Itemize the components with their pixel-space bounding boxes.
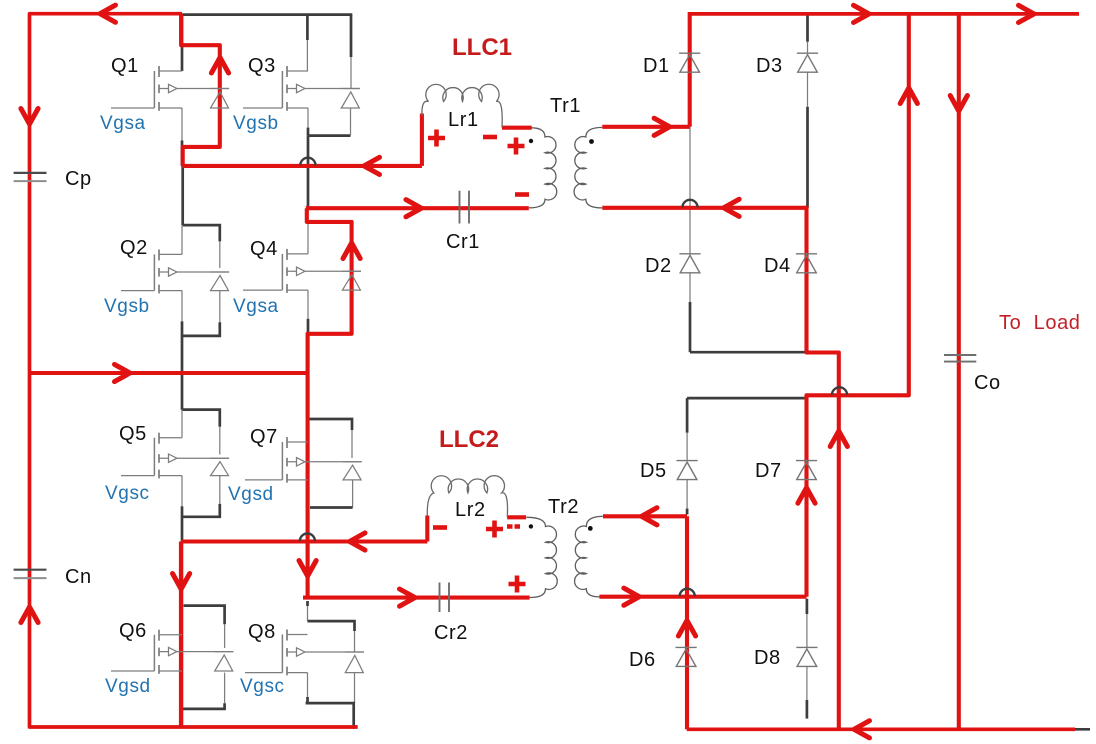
svg-text:Vgsa: Vgsa xyxy=(100,113,146,134)
svg-text:Tr2: Tr2 xyxy=(548,496,579,518)
svg-text:Lr1: Lr1 xyxy=(448,109,479,131)
svg-text:Q5: Q5 xyxy=(119,423,147,445)
svg-text:D8: D8 xyxy=(754,647,781,669)
svg-text:Vgsd: Vgsd xyxy=(228,484,274,505)
svg-text:Cp: Cp xyxy=(65,168,92,190)
svg-text:Q3: Q3 xyxy=(248,55,276,77)
svg-text:Lr2: Lr2 xyxy=(455,499,486,521)
svg-text:D6: D6 xyxy=(629,649,656,671)
svg-text:Cr2: Cr2 xyxy=(434,622,468,644)
svg-text:Vgsc: Vgsc xyxy=(105,483,150,504)
svg-text:Vgsd: Vgsd xyxy=(105,676,151,697)
svg-text:D2: D2 xyxy=(645,255,672,277)
svg-text:LLC1: LLC1 xyxy=(452,34,512,61)
svg-text:Q8: Q8 xyxy=(248,621,276,643)
svg-text:Vgsb: Vgsb xyxy=(104,296,150,317)
svg-text:Q1: Q1 xyxy=(111,55,139,77)
svg-text:D1: D1 xyxy=(643,55,670,77)
svg-text:Q2: Q2 xyxy=(120,237,148,259)
svg-text:D5: D5 xyxy=(640,460,667,482)
svg-text:D7: D7 xyxy=(755,460,782,482)
svg-text:Q4: Q4 xyxy=(250,238,278,260)
svg-text:Q6: Q6 xyxy=(119,620,147,642)
svg-text:Vgsc: Vgsc xyxy=(240,676,285,697)
svg-text:Vgsb: Vgsb xyxy=(233,113,279,134)
svg-text:Cn: Cn xyxy=(65,566,92,588)
svg-text:Co: Co xyxy=(974,372,1001,394)
svg-text:LLC2: LLC2 xyxy=(439,426,499,453)
svg-text:Cr1: Cr1 xyxy=(446,231,480,253)
svg-text:To Load: To Load xyxy=(999,312,1081,334)
svg-text:Tr1: Tr1 xyxy=(550,95,581,117)
svg-text:Vgsa: Vgsa xyxy=(233,296,279,317)
svg-text:D3: D3 xyxy=(756,55,783,77)
svg-text:D4: D4 xyxy=(764,255,791,277)
svg-text:Q7: Q7 xyxy=(250,426,278,448)
